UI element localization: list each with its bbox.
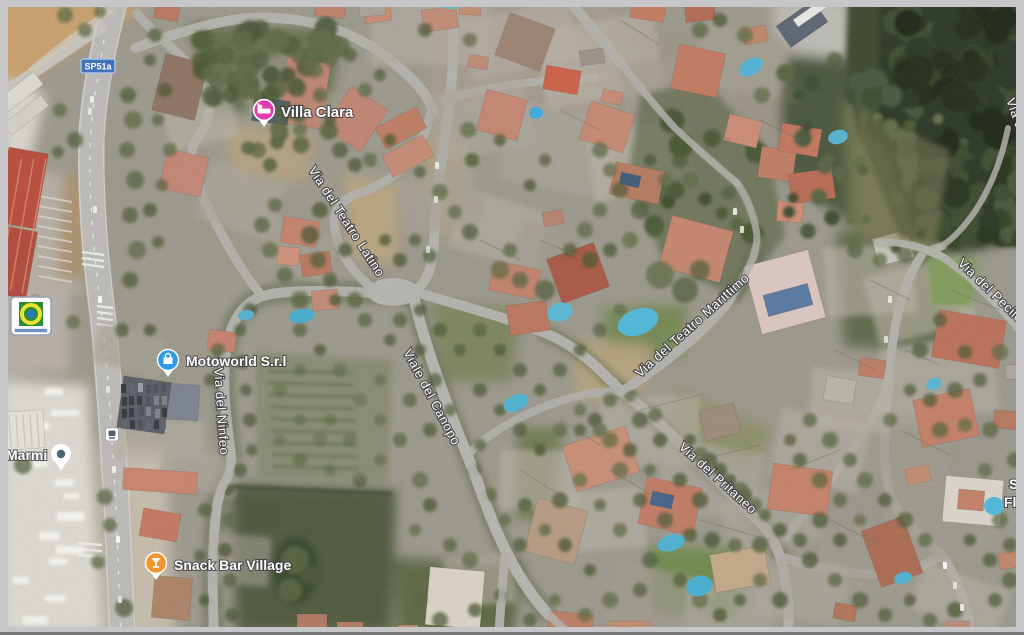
svg-text:SP51a: SP51a <box>84 62 112 72</box>
svg-text:Motoworld S.r.l: Motoworld S.r.l <box>186 353 286 369</box>
svg-text:Snack Bar Village: Snack Bar Village <box>174 557 291 573</box>
svg-text:Villa Clara: Villa Clara <box>281 104 354 121</box>
svg-text:Marmi: Marmi <box>6 447 47 463</box>
